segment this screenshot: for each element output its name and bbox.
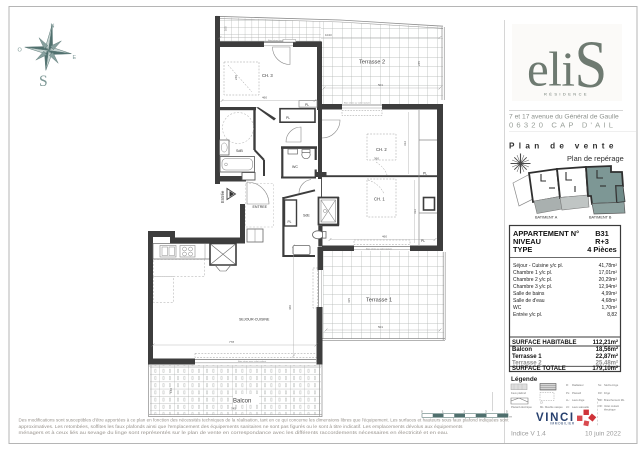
svg-text:Lave-vaisselle: Lave-vaisselle: [572, 405, 590, 409]
svg-text:PL: PL: [421, 239, 425, 243]
svg-text:415: 415: [347, 298, 351, 303]
svg-text:R:: R:: [566, 383, 569, 387]
svg-text:Indice V 1.4: Indice V 1.4: [511, 431, 546, 438]
svg-text:41,78m²: 41,78m²: [599, 263, 618, 269]
svg-text:Baie vitree av volet roulant: Baie vitree av volet roulant: [344, 101, 370, 104]
svg-text:Terrasse 1: Terrasse 1: [512, 354, 542, 360]
svg-text:SURFACE HABITABLE: SURFACE HABITABLE: [512, 340, 577, 346]
svg-text:Chambre 1 y/c pl.: Chambre 1 y/c pl.: [513, 270, 552, 276]
svg-text:WC: WC: [513, 305, 522, 311]
svg-text:10 juin 2022: 10 juin 2022: [585, 431, 621, 438]
svg-text:Branchement ML: Branchement ML: [604, 398, 625, 402]
svg-text:501: 501: [378, 325, 383, 329]
svg-text:245: 245: [417, 61, 421, 66]
svg-text:Chambre 3 y/c pl.: Chambre 3 y/c pl.: [513, 284, 552, 290]
svg-text:Frigo: Frigo: [604, 391, 611, 395]
svg-text:ML: Meuble vasque: ML: Meuble vasque: [540, 405, 563, 409]
svg-text:312: 312: [403, 141, 407, 146]
svg-text:140: 140: [169, 388, 173, 393]
svg-text:LV:: LV:: [566, 405, 570, 409]
svg-text:Baie vitree avec volet roulant: Baie vitree avec volet roulant: [238, 360, 266, 363]
svg-text:SL:: SL:: [598, 383, 602, 387]
svg-text:112,21m²: 112,21m²: [593, 339, 618, 346]
svg-text:O: O: [18, 48, 23, 54]
svg-text:CH. 1: CH. 1: [374, 197, 385, 202]
svg-text:SEJOUR-CUISINE: SEJOUR-CUISINE: [239, 318, 270, 322]
svg-text:22,87m²: 22,87m²: [596, 353, 618, 360]
svg-text:Lave-linge: Lave-linge: [572, 398, 585, 402]
svg-text:4,68m²: 4,68m²: [601, 298, 617, 304]
svg-text:ménagers et à ceux liés au sev: ménagers et à ceux liés au sevage du lin…: [19, 430, 449, 435]
svg-text:eli: eli: [527, 42, 574, 97]
svg-text:FR:: FR:: [598, 391, 603, 395]
svg-text:460: 460: [288, 305, 292, 310]
svg-text:12,94m²: 12,94m²: [599, 284, 618, 290]
svg-text:CH. 2: CH. 2: [376, 147, 387, 152]
svg-text:BATIMENT B: BATIMENT B: [589, 216, 612, 220]
svg-text:Balcon: Balcon: [512, 347, 532, 353]
svg-text:Chambre 2 y/c pl.: Chambre 2 y/c pl.: [513, 277, 552, 283]
svg-text:06320 CAP D'AIL: 06320 CAP D'AIL: [509, 121, 616, 130]
svg-text:PL: PL: [423, 172, 427, 176]
svg-text:Volet roulant: Volet roulant: [604, 404, 619, 408]
svg-text:Entrée: Entrée: [220, 190, 225, 203]
svg-text:SURFACE TOTALE: SURFACE TOTALE: [512, 366, 566, 372]
svg-text:approximatives. Les retombées,: approximatives. Les retombées, soffites …: [19, 424, 463, 429]
svg-text:E: E: [73, 55, 77, 61]
svg-text:17,01m²: 17,01m²: [599, 270, 618, 276]
svg-text:4 Pièces: 4 Pièces: [587, 245, 617, 254]
svg-text:745: 745: [231, 407, 236, 411]
svg-text:PL:: PL:: [566, 391, 570, 395]
svg-text:Plan de repérage: Plan de repérage: [567, 154, 624, 163]
svg-text:240: 240: [234, 75, 238, 80]
svg-text:Des modifications sont suscept: Des modifications sont susceptibles d'êt…: [19, 418, 510, 423]
svg-text:BR:: BR:: [598, 398, 603, 402]
svg-text:Légende: Légende: [511, 376, 538, 383]
svg-text:Balcon: Balcon: [233, 399, 251, 405]
svg-text:4,99m²: 4,99m²: [601, 291, 617, 297]
svg-text:Faux plafond: Faux plafond: [511, 391, 527, 395]
svg-text:IMMOBILIER: IMMOBILIER: [550, 422, 575, 426]
svg-text:778: 778: [229, 340, 234, 344]
svg-text:Salle de bains: Salle de bains: [513, 291, 545, 297]
svg-text:électrique: électrique: [604, 408, 616, 412]
svg-text:105: 105: [224, 26, 228, 31]
svg-text:PL: PL: [288, 220, 292, 224]
svg-text:S: S: [39, 73, 48, 90]
svg-text:Terrasse 2: Terrasse 2: [359, 60, 385, 66]
svg-text:LL:: LL:: [566, 398, 570, 402]
svg-text:Terrasse 1: Terrasse 1: [366, 298, 392, 304]
svg-text:Cf: Cf: [540, 401, 543, 405]
svg-text:RÉSIDENCE: RÉSIDENCE: [544, 92, 589, 97]
svg-text:PL: PL: [305, 103, 309, 107]
svg-text:332: 332: [413, 209, 417, 214]
svg-text:VR:: VR:: [598, 404, 603, 408]
svg-text:PL: PL: [286, 116, 290, 120]
svg-text:501: 501: [378, 83, 383, 87]
svg-text:18,56m²: 18,56m²: [596, 346, 618, 353]
svg-text:20,29m²: 20,29m²: [599, 277, 618, 283]
svg-text:Radiateur: Radiateur: [572, 383, 584, 387]
svg-text:Sèche-linge: Sèche-linge: [604, 383, 619, 387]
svg-text:N: N: [51, 24, 55, 30]
svg-text:1043: 1043: [325, 33, 332, 37]
svg-text:Salle de d'eau: Salle de d'eau: [513, 298, 545, 304]
svg-text:SdE: SdE: [303, 214, 310, 218]
svg-text:SdB: SdB: [236, 149, 243, 153]
svg-text:179,10m²: 179,10m²: [592, 365, 618, 372]
svg-text:Séjour - Cuisine y/c pl.: Séjour - Cuisine y/c pl.: [513, 263, 563, 269]
svg-text:Entrée y/c pl.: Entrée y/c pl.: [513, 312, 542, 318]
svg-text:Baie vitree av volet roulant: Baie vitree av volet roulant: [366, 247, 392, 250]
svg-text:ENTREE: ENTREE: [253, 205, 268, 209]
svg-text:460: 460: [382, 235, 387, 239]
svg-text:Plan de vente: Plan de vente: [509, 141, 618, 150]
svg-text:460: 460: [262, 96, 267, 100]
svg-text:Placard: Placard: [572, 391, 582, 395]
svg-text:WC: WC: [292, 165, 298, 169]
svg-text:8,82: 8,82: [607, 312, 617, 318]
svg-text:Placard électrique: Placard électrique: [511, 405, 532, 409]
svg-text:TYPE: TYPE: [513, 245, 532, 254]
svg-text:BATIMENT A: BATIMENT A: [535, 216, 558, 220]
svg-text:7 et 17 avenue du Général de G: 7 et 17 avenue du Général de Gaulle: [509, 114, 619, 121]
svg-text:1,70m²: 1,70m²: [601, 305, 617, 311]
svg-text:CH. 3: CH. 3: [262, 73, 273, 78]
